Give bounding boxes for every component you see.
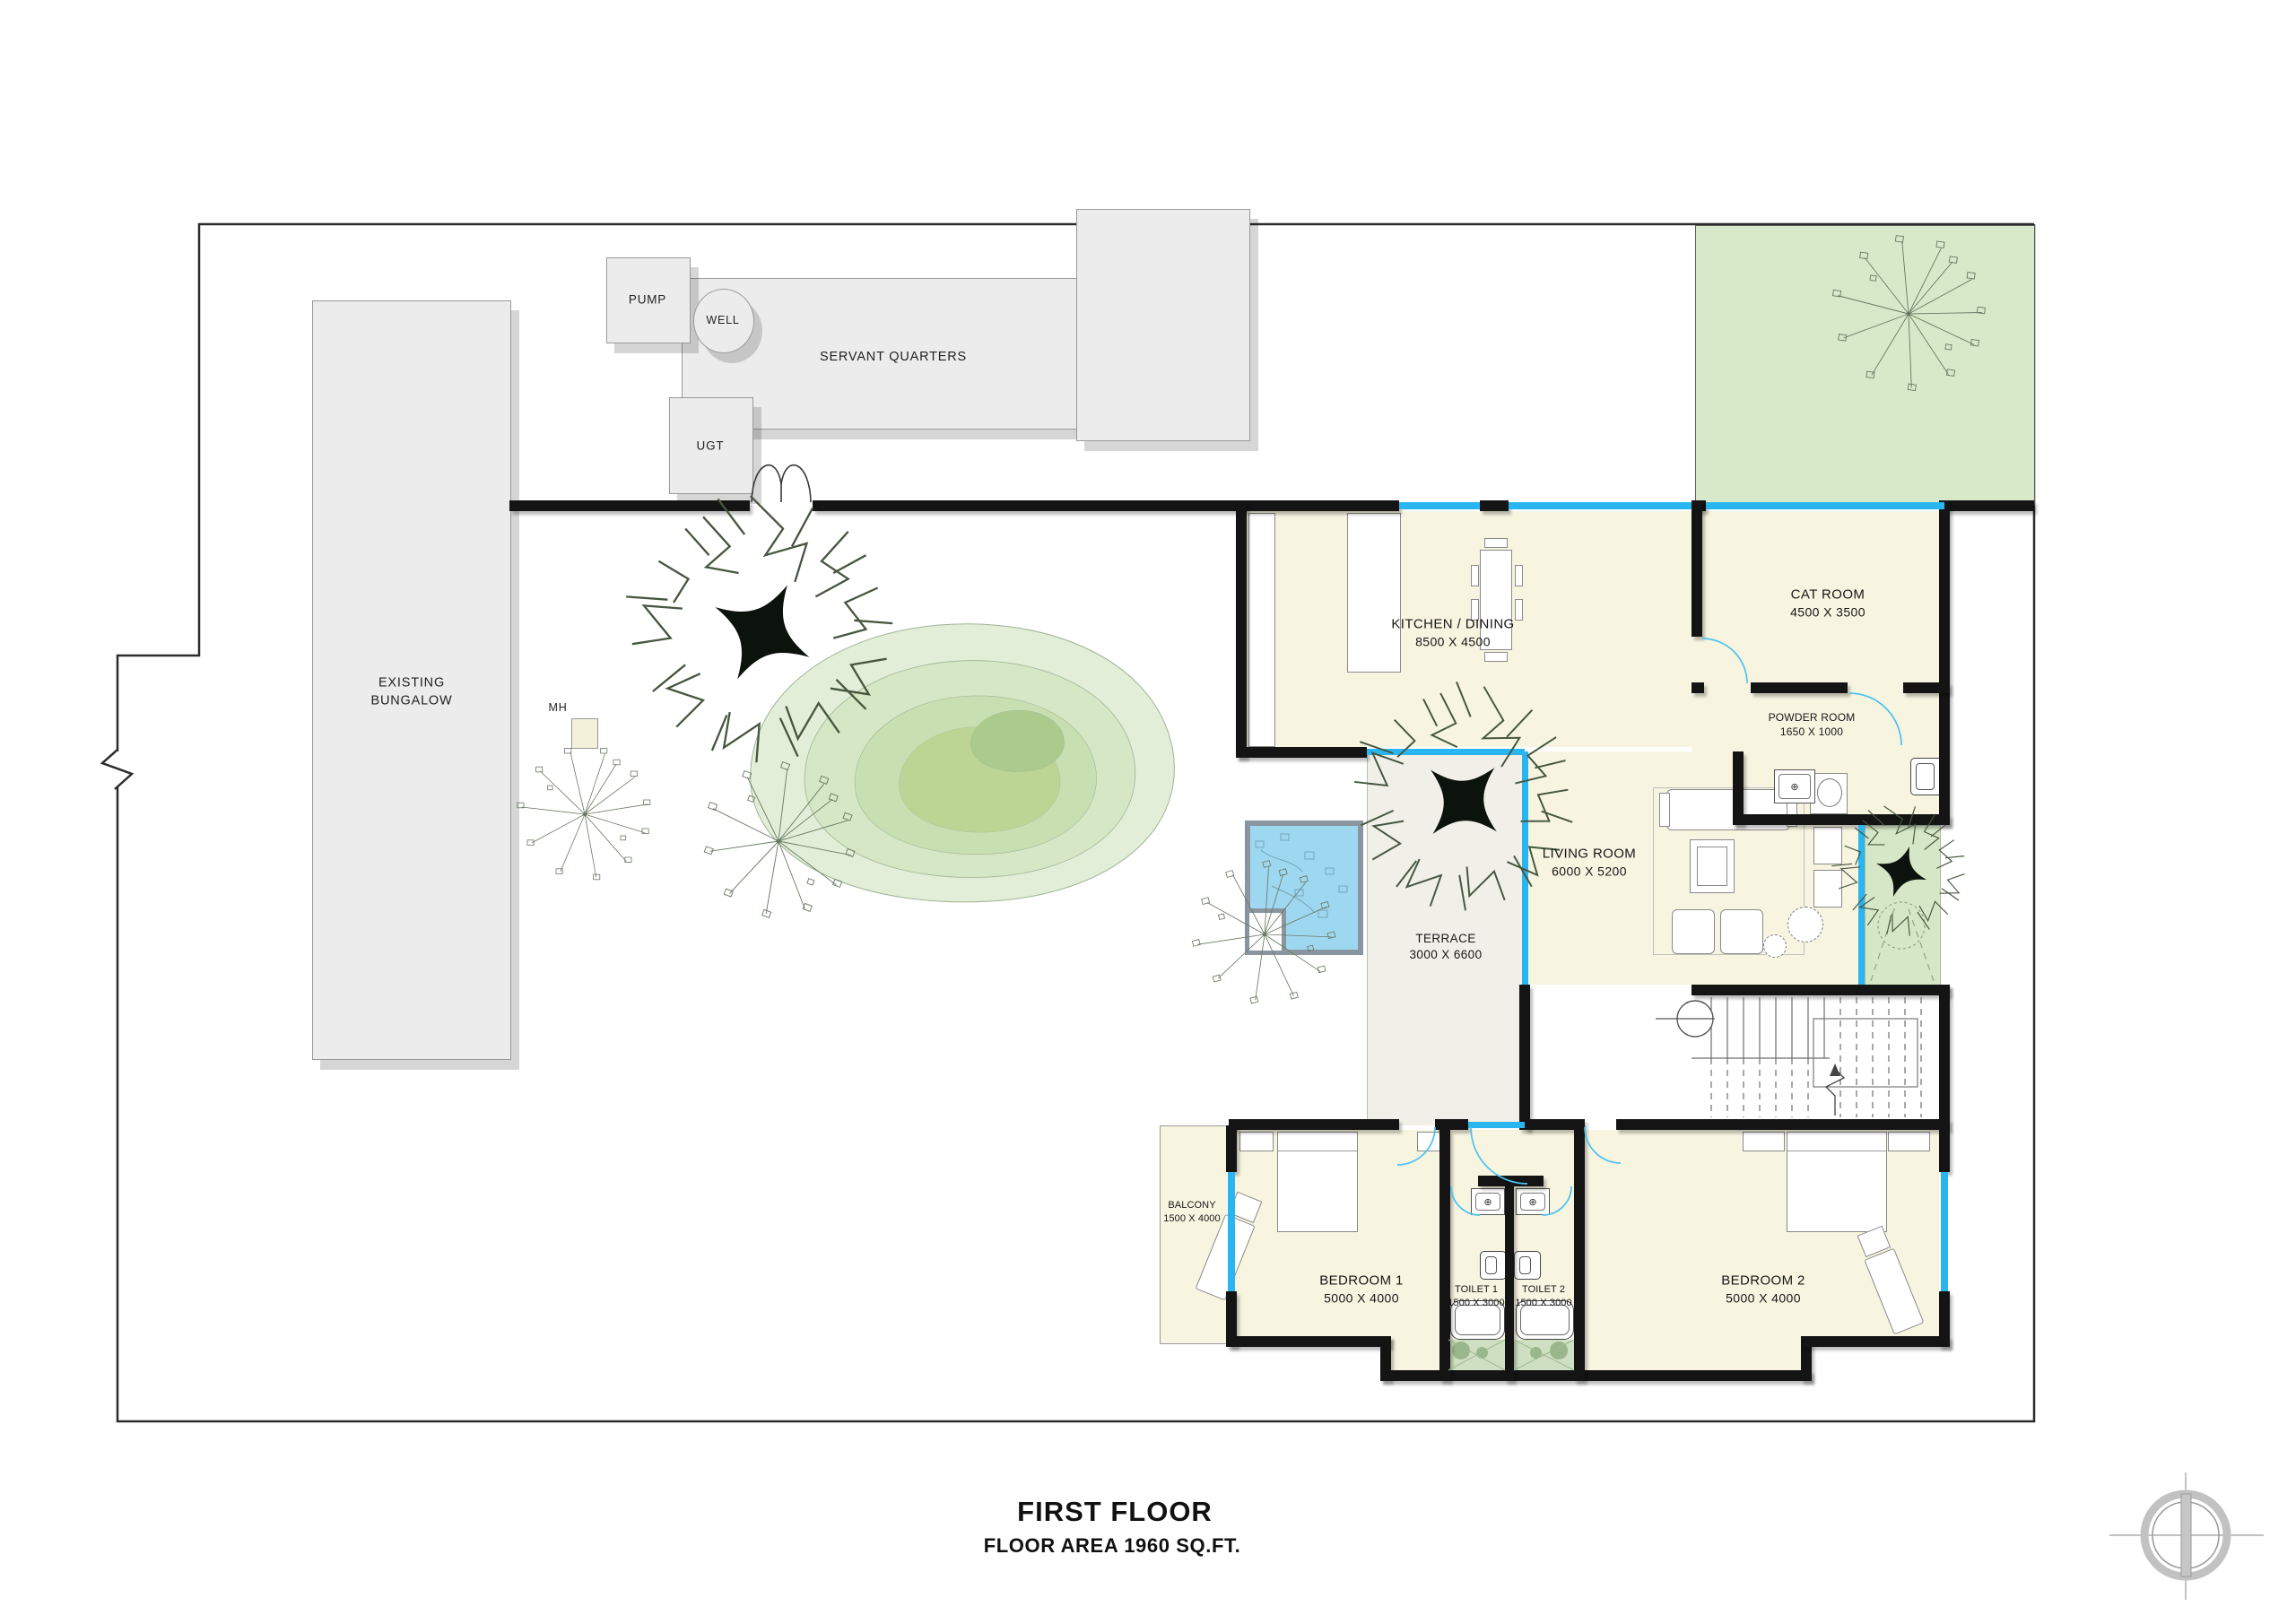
pond-corner-deck [1245, 908, 1286, 955]
bedroom2-window [1941, 1172, 1948, 1291]
bedside-table [1239, 1132, 1274, 1151]
room-name: BALCONY [1163, 1199, 1221, 1212]
toilet1-wc [1480, 1251, 1507, 1280]
kitchen-north-wall [1480, 500, 1509, 511]
room-dims: 4500 X 3500 [1790, 604, 1865, 621]
sofa-armrest [1659, 793, 1670, 827]
dining-chair [1484, 652, 1508, 662]
rear-garden-block [1696, 226, 2034, 505]
bath-plant-icon [1530, 1347, 1542, 1359]
dry-tree-icon [517, 748, 650, 879]
room-name: LIVING ROOM [1543, 845, 1636, 863]
bath-plant-icon [1452, 1342, 1470, 1359]
bedroom1-toilet-wall [1439, 1130, 1450, 1381]
room-dims: 5000 X 4000 [1721, 1290, 1805, 1307]
toilet2-north-wall [1514, 1176, 1544, 1186]
balcony-window [1228, 1172, 1235, 1291]
bedroom1-south-wall [1229, 1336, 1391, 1347]
room-d ims: 1650 X 1000 [1769, 725, 1856, 739]
bath-plant-icon [1550, 1342, 1568, 1359]
floor-plan-canvas: ⊕ ⊕ ⊕ [0, 0, 2296, 1624]
toilet1-sink: ⊕ [1471, 1188, 1505, 1215]
kitchen-south-wall [1236, 747, 1367, 758]
dry-tree-icon [680, 743, 875, 937]
kitchen-north-wall [1236, 500, 1399, 511]
room-dims: 8500 X 4500 [1391, 634, 1514, 651]
stair-north-wall [1692, 985, 1950, 995]
well-label: WELL [706, 314, 739, 326]
bedroom-north-wall [1435, 1119, 1468, 1130]
dining-chair [1515, 599, 1523, 621]
dining-chair [1515, 565, 1523, 586]
kitchen-label: KITCHEN / DINING 8500 X 4500 [1391, 615, 1514, 650]
ugt-label: UGT [697, 439, 725, 453]
room-name: BEDROOM 1 [1319, 1272, 1404, 1290]
room-dims: 1500 X 3000 [1515, 1297, 1572, 1310]
kitchen-window [1399, 502, 1480, 509]
toilet-divider-wall [1505, 1176, 1514, 1381]
toilet2-label: TOILET 2 1500 X 3000 [1515, 1283, 1572, 1310]
kitchen-window [1509, 502, 1692, 509]
side-garden-strip [1865, 825, 1941, 986]
room-dims: 1500 X 4000 [1163, 1212, 1221, 1226]
toilet2-wc [1514, 1251, 1541, 1280]
dining-chair [1471, 565, 1479, 586]
balcony-divider-wall [1226, 1125, 1237, 1172]
cat-south-wall [1751, 682, 1848, 693]
room-name: TERRACE [1410, 931, 1483, 947]
living-side-window [1858, 825, 1865, 985]
east-wall [1939, 500, 1950, 825]
gate-swing-icon [752, 465, 811, 502]
living-room-label: LIVING ROOM 6000 X 5200 [1543, 845, 1636, 880]
console-unit [1813, 870, 1842, 908]
compound-wall [813, 500, 1236, 511]
room-name: KITCHEN / DINING [1391, 615, 1514, 633]
stairwell-floor [1692, 995, 1939, 1119]
cat-south-wall [1692, 682, 1704, 693]
powder-south-wall [1733, 814, 1950, 825]
bedroom1-bed [1277, 1132, 1358, 1232]
coffee-table-inner [1697, 847, 1727, 886]
bedroom2-bed [1787, 1132, 1887, 1232]
kitchen-cat-divider [1692, 500, 1702, 637]
powder-room-label: POWDER ROOM 1650 X 1000 [1769, 710, 1856, 739]
powder-sink: ⊕ [1774, 769, 1815, 803]
bedroom2-label: BEDROOM 2 5000 X 4000 [1721, 1272, 1805, 1307]
bedroom1-label: BEDROOM 1 5000 X 4000 [1319, 1272, 1404, 1307]
toilet1-label: TOILET 1 1500 X 3000 [1448, 1283, 1505, 1310]
dining-chair [1484, 538, 1508, 548]
armchair [1720, 909, 1763, 954]
toilet1-north-wall [1478, 1176, 1505, 1186]
terrace-east-wall [1519, 985, 1530, 1130]
boundary-break-icon [102, 750, 132, 789]
terrace-glass-east [1522, 751, 1528, 985]
bedside-table [1888, 1132, 1930, 1151]
drawing-subtitle: FLOOR AREA 1960 SQ.FT. [984, 1534, 1241, 1558]
pump-label: PUMP [629, 293, 666, 307]
room-dims: 1500 X 3000 [1448, 1297, 1505, 1310]
room-name: BEDROOM 2 [1721, 1272, 1805, 1290]
stair-east-wall [1939, 985, 1950, 1130]
terrace-glass-north [1367, 749, 1525, 755]
kitchen-west-wall [1236, 500, 1247, 758]
garden-contours [751, 624, 1175, 902]
bedroom-north-wall [1616, 1119, 1950, 1130]
servant-quarters-wing [1076, 209, 1250, 441]
north-east-wall [1939, 500, 2034, 511]
kitchen-counter-left [1248, 513, 1275, 747]
armchair [1672, 909, 1715, 954]
terrace-entry-door-line [1468, 1122, 1525, 1128]
manhole-label: MH [548, 701, 567, 714]
room-name: POWDER ROOM [1769, 710, 1856, 725]
bedroom-north-wall [1525, 1119, 1585, 1130]
drawing-title: FIRST FLOOR [1017, 1496, 1213, 1528]
compass-icon [2109, 1472, 2264, 1600]
room-dims: 3000 X 6600 [1410, 947, 1483, 963]
tv-unit-circle [1817, 778, 1842, 807]
balcony-label: BALCONY 1500 X 4000 [1163, 1199, 1221, 1226]
existing-bungalow-label: EXISTING BUNGALOW [349, 674, 474, 711]
bedside-table [1743, 1132, 1785, 1151]
room-name: CAT ROOM [1790, 586, 1865, 604]
room-name: TOILET 1 [1448, 1283, 1505, 1297]
bedroom-north-wall [1229, 1119, 1399, 1130]
servant-quarters-label: SERVANT QUARTERS [820, 350, 967, 364]
cat-room-window [1706, 502, 1944, 509]
bath-plant-icon [1476, 1347, 1488, 1359]
plant-pot-icon [1763, 934, 1787, 958]
plant-pot-icon [1787, 907, 1823, 942]
terrace-label: TERRACE 3000 X 6600 [1410, 931, 1483, 963]
cat-south-wall [1903, 682, 1950, 693]
garden-tree-icon [626, 496, 892, 762]
cat-room-label: CAT ROOM 4500 X 3500 [1790, 586, 1865, 621]
room-name: TOILET 2 [1515, 1283, 1572, 1297]
building-name: EXISTING BUNGALOW [349, 674, 474, 711]
room-dims: 6000 X 5200 [1543, 864, 1636, 881]
manhole-box [571, 718, 598, 749]
bedroom2-south-wall [1801, 1336, 1950, 1347]
toilet-bedroom2-wall [1574, 1130, 1585, 1381]
bedroom2-east-wall [1939, 1130, 1950, 1172]
compound-wall [509, 500, 750, 511]
console-unit [1813, 827, 1842, 864]
toilet2-sink: ⊕ [1516, 1188, 1550, 1215]
room-dims: 5000 X 4000 [1319, 1290, 1404, 1307]
